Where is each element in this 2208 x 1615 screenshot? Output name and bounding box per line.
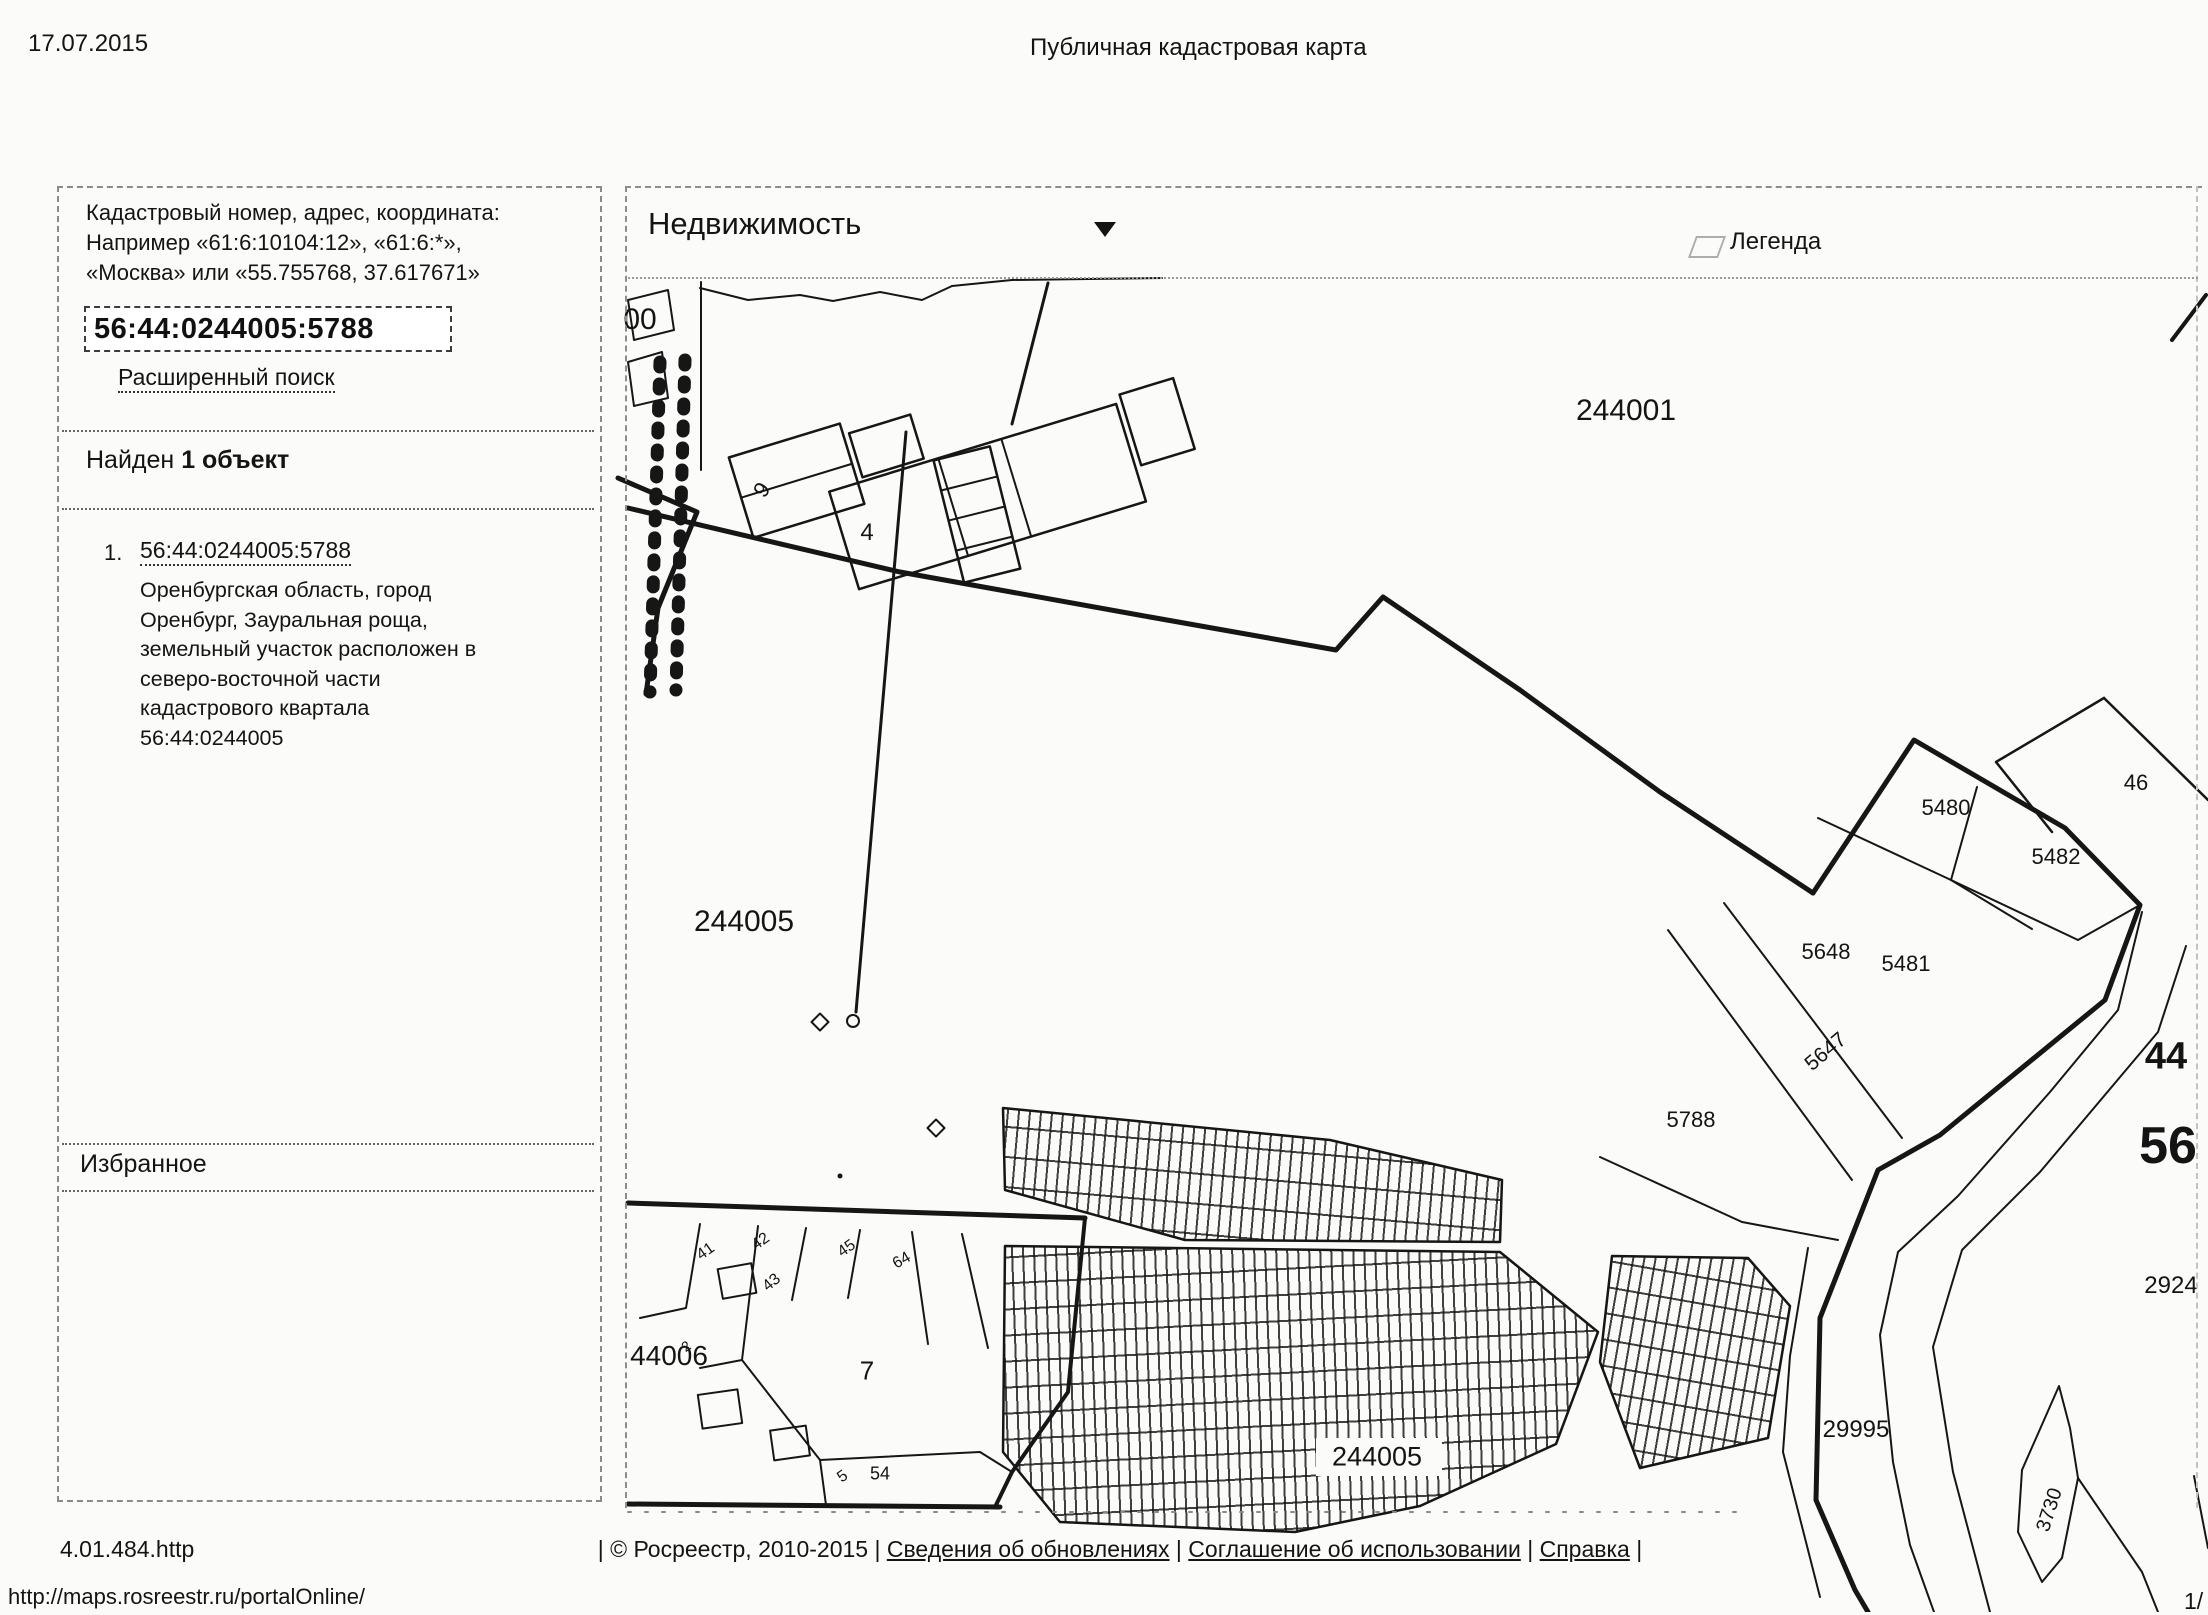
map-footer: | © Росреестр, 2010-2015 | Сведения об о… <box>530 1536 1710 1563</box>
search-hint-line: Например «61:6:10104:12», «61:6:*», <box>86 228 500 258</box>
copyright-label: © Росреестр, 2010-2015 <box>610 1536 868 1562</box>
page-number: 1/ <box>2184 1588 2203 1615</box>
legend-button[interactable]: Легенда <box>1730 228 1821 256</box>
divider <box>62 1143 594 1145</box>
results-count-line: Найден 1 объект <box>86 446 289 475</box>
result-address: Оренбургская область, город Оренбург, За… <box>140 576 498 753</box>
result-index: 1. <box>104 540 122 566</box>
favorites-section-title[interactable]: Избранное <box>80 1150 207 1179</box>
footer-separator: | <box>868 1536 887 1562</box>
map-panel-border-top <box>625 186 2202 188</box>
footer-link[interactable]: Соглашение об использовании <box>1188 1536 1521 1562</box>
map-panel-border-right <box>2196 186 2198 1508</box>
advanced-search-link[interactable]: Расширенный поиск <box>118 364 335 393</box>
search-hint-line: Кадастровый номер, адрес, координата: <box>86 198 500 228</box>
result-cadastral-number-link[interactable]: 56:44:0244005:5788 <box>140 537 351 566</box>
footer-separator: | <box>1630 1536 1642 1562</box>
divider <box>62 1190 594 1192</box>
search-hint: Кадастровый номер, адрес, координата:Нап… <box>86 198 500 288</box>
footer-separator: | <box>1521 1536 1540 1562</box>
divider <box>62 508 594 510</box>
map-header-divider <box>628 277 2198 279</box>
label-backplate <box>1316 1438 1442 1476</box>
footer-link[interactable]: Сведения об обновлениях <box>887 1536 1170 1562</box>
page-title: Публичная кадастровая карта <box>1030 34 1367 62</box>
results-prefix: Найден <box>86 446 174 474</box>
footer-separator: | <box>1170 1536 1189 1562</box>
results-count-value: 1 объект <box>181 446 289 474</box>
search-hint-line: «Москва» или «55.755768, 37.617671» <box>86 258 500 288</box>
chevron-down-icon[interactable] <box>1094 222 1116 237</box>
print-date: 17.07.2015 <box>28 30 148 58</box>
map-canvas[interactable] <box>627 188 2197 1506</box>
source-url: http://maps.rosreestr.ru/portalOnline/ <box>8 1584 365 1610</box>
map-panel-border-left <box>625 186 627 1508</box>
footer-separator: | <box>598 1536 610 1562</box>
divider <box>62 430 594 432</box>
search-input[interactable] <box>84 306 452 352</box>
layer-dropdown[interactable]: Недвижимость <box>648 206 861 242</box>
footer-link[interactable]: Справка <box>1540 1536 1630 1562</box>
version-label: 4.01.484.http <box>60 1536 194 1563</box>
